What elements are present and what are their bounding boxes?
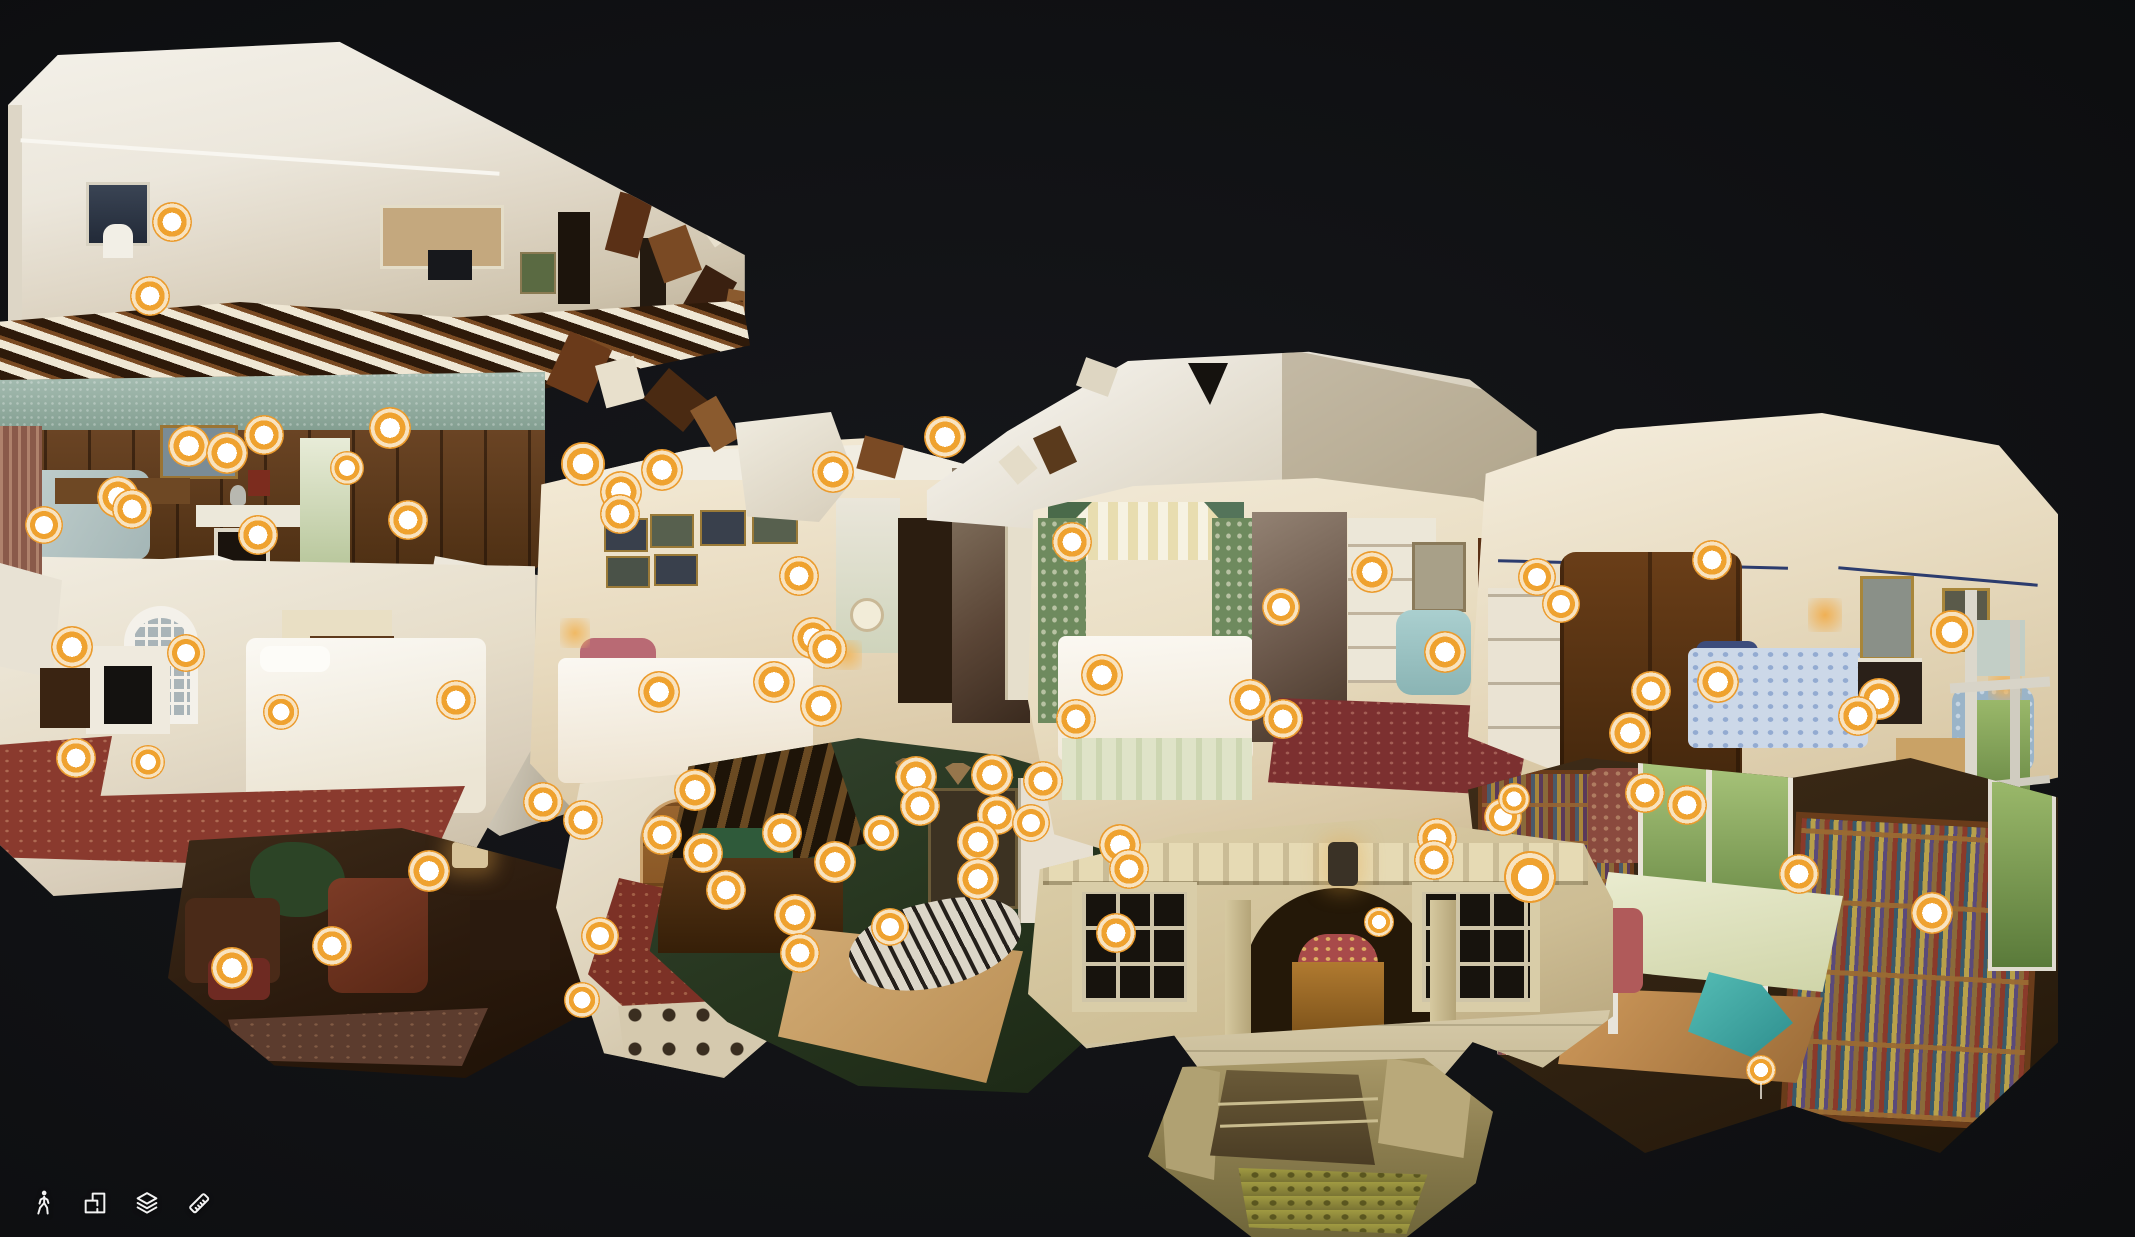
- dollhouse-viewport[interactable]: [0, 0, 2135, 1237]
- scan-point-marker[interactable]: [1779, 854, 1819, 894]
- scan-point-marker[interactable]: [25, 506, 63, 544]
- walk-person-icon: [29, 1189, 57, 1217]
- scan-point-marker[interactable]: [780, 933, 820, 973]
- scan-point-marker[interactable]: [924, 416, 966, 458]
- scan-point-marker[interactable]: [957, 821, 999, 863]
- scan-point-marker[interactable]: [1263, 699, 1303, 739]
- scan-point-marker[interactable]: [1364, 907, 1394, 937]
- scan-point-marker[interactable]: [51, 626, 93, 668]
- scan-point-marker[interactable]: [369, 407, 411, 449]
- scan-point-marker[interactable]: [1109, 849, 1149, 889]
- layers-icon: [133, 1189, 161, 1217]
- scan-point-marker[interactable]: [779, 556, 819, 596]
- scan-point-marker[interactable]: [1692, 540, 1732, 580]
- scan-point-marker[interactable]: [762, 813, 802, 853]
- scan-point-marker[interactable]: [131, 745, 165, 779]
- scan-point-marker[interactable]: [1667, 785, 1707, 825]
- scan-point-marker[interactable]: [563, 800, 603, 840]
- scan-point-marker[interactable]: [130, 276, 170, 316]
- scan-point-marker[interactable]: [638, 671, 680, 713]
- walk-mode-button[interactable]: [26, 1184, 60, 1222]
- scan-point-marker[interactable]: [263, 694, 299, 730]
- scan-point-marker[interactable]: [388, 500, 428, 540]
- scan-point-marker[interactable]: [1609, 712, 1651, 754]
- scan-point-marker[interactable]: [1697, 661, 1739, 703]
- scan-point-marker[interactable]: [674, 769, 716, 811]
- scan-point-marker[interactable]: [1096, 913, 1136, 953]
- scan-point-marker[interactable]: [863, 815, 899, 851]
- measure-button[interactable]: [182, 1184, 216, 1222]
- scan-point-marker[interactable]: [600, 494, 640, 534]
- scan-point-marker[interactable]: [1012, 804, 1050, 842]
- scan-point-marker[interactable]: [1424, 631, 1466, 673]
- dollhouse-floorplan-button[interactable]: [78, 1184, 112, 1222]
- scan-point-marker[interactable]: [56, 738, 96, 778]
- scan-point-marker[interactable]: [330, 451, 364, 485]
- scan-point-marker[interactable]: [167, 634, 205, 672]
- scan-point-marker[interactable]: [564, 982, 600, 1018]
- scan-point-marker[interactable]: [436, 680, 476, 720]
- scan-point-marker[interactable]: [211, 947, 253, 989]
- ruler-icon: [185, 1189, 213, 1217]
- bottom-toolbar: [26, 1184, 216, 1222]
- scan-point-marker[interactable]: [312, 926, 352, 966]
- scan-point-marker[interactable]: [1504, 851, 1556, 903]
- scan-point-marker[interactable]: [1930, 610, 1974, 654]
- scan-point-marker[interactable]: [706, 870, 746, 910]
- scan-point-marker[interactable]: [1542, 585, 1580, 623]
- scan-point-marker[interactable]: [1351, 551, 1393, 593]
- scan-point-marker[interactable]: [812, 451, 854, 493]
- scan-point-marker[interactable]: [683, 833, 723, 873]
- scan-point-marker[interactable]: [206, 432, 248, 474]
- scan-point-marker[interactable]: [1838, 696, 1878, 736]
- scan-point-marker[interactable]: [1625, 773, 1665, 813]
- scan-point-marker[interactable]: [774, 894, 816, 936]
- scan-point-pin-marker[interactable]: [1746, 1055, 1776, 1085]
- floor-selector-button[interactable]: [130, 1184, 164, 1222]
- scan-point-marker[interactable]: [1023, 761, 1063, 801]
- scan-point-marker[interactable]: [1414, 840, 1454, 880]
- scan-point-marker[interactable]: [1911, 892, 1953, 934]
- scan-point-marker[interactable]: [957, 858, 999, 900]
- scan-point-marker[interactable]: [561, 442, 605, 486]
- scan-point-marker[interactable]: [581, 917, 619, 955]
- scan-point-marker[interactable]: [900, 786, 940, 826]
- scan-point-marker[interactable]: [641, 449, 683, 491]
- floorplan-icon: [81, 1189, 109, 1217]
- scan-point-marker[interactable]: [168, 425, 210, 467]
- scan-point-marker[interactable]: [753, 661, 795, 703]
- scan-point-marker[interactable]: [1052, 522, 1092, 562]
- scan-point-marker[interactable]: [800, 685, 842, 727]
- scan-point-marker[interactable]: [1262, 588, 1300, 626]
- scan-point-marker[interactable]: [971, 754, 1013, 796]
- scan-point-marker[interactable]: [1498, 783, 1530, 815]
- scan-point-marker[interactable]: [1056, 699, 1096, 739]
- scan-point-marker[interactable]: [523, 782, 563, 822]
- scan-point-marker[interactable]: [871, 908, 909, 946]
- scan-markers-layer: [0, 0, 2135, 1237]
- scan-point-marker[interactable]: [814, 841, 856, 883]
- scan-point-marker[interactable]: [152, 202, 192, 242]
- scan-point-marker[interactable]: [238, 515, 278, 555]
- scan-point-marker[interactable]: [807, 629, 847, 669]
- scan-point-marker[interactable]: [1631, 671, 1671, 711]
- scan-point-marker[interactable]: [1081, 654, 1123, 696]
- scan-point-marker[interactable]: [642, 815, 682, 855]
- scan-point-marker[interactable]: [408, 850, 450, 892]
- scan-point-marker[interactable]: [112, 489, 152, 529]
- scan-point-marker[interactable]: [244, 415, 284, 455]
